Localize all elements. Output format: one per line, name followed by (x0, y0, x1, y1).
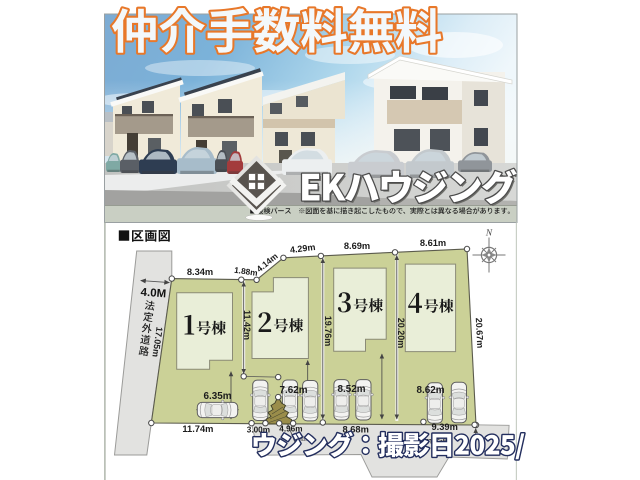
svg-text:8.62m: 8.62m (416, 385, 444, 396)
svg-text:6.35m: 6.35m (203, 391, 231, 402)
svg-text:11.74m: 11.74m (182, 424, 213, 434)
svg-text:7.62m: 7.62m (279, 385, 307, 396)
svg-text:4.0M: 4.0M (140, 287, 166, 301)
svg-text:11.42m: 11.42m (242, 310, 252, 340)
svg-text:20.20m: 20.20m (396, 318, 406, 349)
svg-text:8.34m: 8.34m (187, 267, 213, 277)
svg-text:8.61m: 8.61m (420, 238, 446, 248)
svg-text:8.69m: 8.69m (344, 241, 370, 251)
svg-text:19.76m: 19.76m (323, 316, 333, 347)
svg-text:4.29m: 4.29m (289, 242, 316, 255)
svg-text:9.39m: 9.39m (432, 422, 458, 432)
svg-text:8.52m: 8.52m (337, 384, 365, 395)
svg-text:20.67m: 20.67m (474, 317, 486, 348)
